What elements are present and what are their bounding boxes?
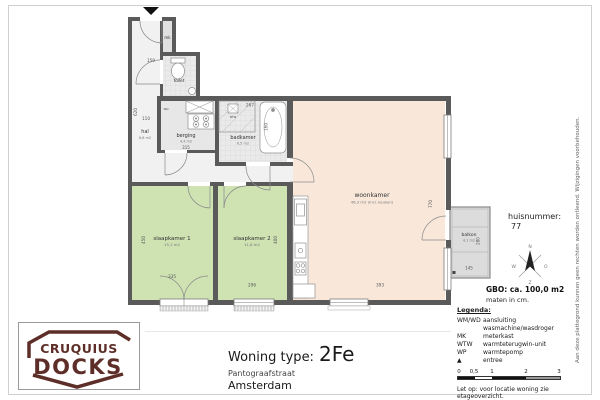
woning-type-value: 2Fe [319, 342, 354, 366]
window-sill [328, 306, 370, 310]
dim-sk1-width: 335 [168, 274, 176, 279]
corridor-floor [157, 153, 215, 182]
north-needle-icon [525, 250, 535, 271]
dim-hal-length: 620 [133, 108, 138, 116]
disclaimer-text: Aan deze plattegrond kunnen geen rechten… [575, 143, 581, 363]
legend-desc: meterkast [483, 333, 514, 341]
legend-abbr: MK [457, 333, 483, 341]
dim-balkon-w: 145 [465, 266, 473, 271]
slaapkamer2-area: 11,8 m2 [244, 242, 260, 247]
scale-tick: 0,5 [470, 369, 479, 375]
hal-label: hal [141, 129, 149, 135]
legend-abbr: WM/WD [457, 317, 483, 333]
title-block: Woning type: 2Fe Pantograafstraat Amster… [228, 342, 355, 392]
legend-abbr: WP [457, 349, 483, 357]
warmtepomp-unit-icon [188, 114, 214, 129]
scale-tick: 2 [524, 369, 528, 375]
legend-row-wp: WP warmtepomp [457, 349, 575, 357]
hal-area: 6,6 m2 [139, 136, 151, 140]
legend-row-entree: ▲ entree [457, 357, 575, 365]
dim-sk1-depth: 450 [141, 236, 146, 244]
compass-w: W [512, 264, 517, 270]
badkamer-area: 6,5 m2 [237, 142, 249, 146]
toilet-label: toilet [174, 78, 185, 83]
legend-row-mk: MK meterkast [457, 333, 575, 341]
wc-bowl-icon [172, 63, 185, 79]
entree-triangle-icon: ▲ [457, 357, 483, 365]
scale-bar: 0 0,5 1 2 3 [457, 369, 561, 381]
floorplan-sheet: hal 6,6 m2 toilet mk wp wtw berging 4,4 … [0, 0, 600, 400]
balcony-grate-1 [160, 306, 208, 311]
woonkamer-label: woonkamer [354, 192, 390, 199]
street-name: Pantograafstraat [228, 369, 355, 378]
balkon-drain-icon [453, 271, 456, 274]
legend-row-wtw: WTW warmteterugwin-unit [457, 341, 575, 349]
cruquius-docks-logo: CRUQUIUS DOCKS [19, 323, 139, 389]
dim-badkamer-w: 267 [246, 103, 254, 108]
logo-box: CRUQUIUS DOCKS [18, 322, 140, 390]
wc-cistern-icon [171, 58, 185, 63]
legend-row-wmwd: WM/WD aansluiting wasmachine/wasdroger [457, 317, 575, 333]
wtw-label: wtw [230, 115, 237, 119]
dim-balkon-d: 280 [476, 237, 481, 245]
mk-label: mk [164, 35, 171, 40]
woning-type-label: Woning type: [228, 350, 314, 365]
logo-text-top: CRUQUIUS [40, 341, 118, 356]
logo-text-bottom: DOCKS [33, 355, 123, 379]
dim-wk-depth: 770 [428, 200, 433, 208]
legend-desc: aansluiting wasmachine/wasdroger [483, 317, 575, 333]
compass-n: N [528, 244, 531, 250]
legend-desc: warmteterugwin-unit [483, 341, 546, 349]
compass-o: O [544, 264, 548, 270]
scale-tick: 0 [457, 369, 461, 375]
city-name: Amsterdam [228, 379, 355, 392]
legend-note: Let op: voor locatie woning zie etageove… [457, 386, 575, 400]
corridor-floor-2 [215, 166, 293, 182]
compass-icon: N O Z W [512, 244, 548, 286]
huisnummer-value: 77 [508, 222, 561, 232]
scale-tick: 3 [557, 369, 561, 375]
hal-floor [132, 21, 160, 182]
scale-tick: 1 [490, 369, 494, 375]
huisnummer-block: huisnummer: 77 [508, 212, 561, 232]
dim-berging: 315 [182, 145, 190, 150]
balkon-label: balkon [462, 232, 477, 238]
bathtub-drain-icon [272, 109, 275, 112]
entree-arrow-icon [143, 7, 159, 15]
balcony-grate-2 [234, 306, 274, 311]
legend-abbr: WTW [457, 341, 483, 349]
badkamer-label: badkamer [230, 135, 256, 141]
kitchen-corner-unit [293, 284, 315, 298]
dim-wk-width: 393 [376, 283, 384, 288]
berging-area: 4,4 m2 [180, 140, 192, 144]
gbo-block: GBO: ca. 100,0 m2 maten in cm. [486, 285, 564, 304]
legend-desc: warmtepomp [483, 349, 523, 357]
legend: Legenda: WM/WD aansluiting wasmachine/wa… [457, 306, 575, 400]
dim-badkamer-d: 160 [264, 123, 269, 131]
maten-note: maten in cm. [486, 296, 564, 304]
scale-bar-segments [457, 376, 561, 380]
balkon-area: 4,1 m2 [463, 239, 475, 243]
berging-label: berging [176, 133, 195, 139]
gbo-value: GBO: ca. 100,0 m2 [486, 285, 564, 294]
dim-sk2-width: 296 [248, 283, 256, 288]
legend-desc: entree [483, 357, 503, 365]
dim-sk2-depth: 400 [273, 236, 278, 244]
woonkamer-area: 46,3 m2 (incl. keuken) [351, 200, 394, 205]
legend-title: Legenda: [457, 306, 575, 314]
slaapkamer1-area: 15,1 m2 [164, 242, 180, 247]
dim-entree: 150 [147, 58, 155, 63]
huisnummer-label: huisnummer: [508, 212, 561, 222]
dim-hal-width: 110 [142, 116, 150, 121]
toilet-sink-icon [189, 88, 196, 95]
wp-label: wp [163, 107, 169, 111]
